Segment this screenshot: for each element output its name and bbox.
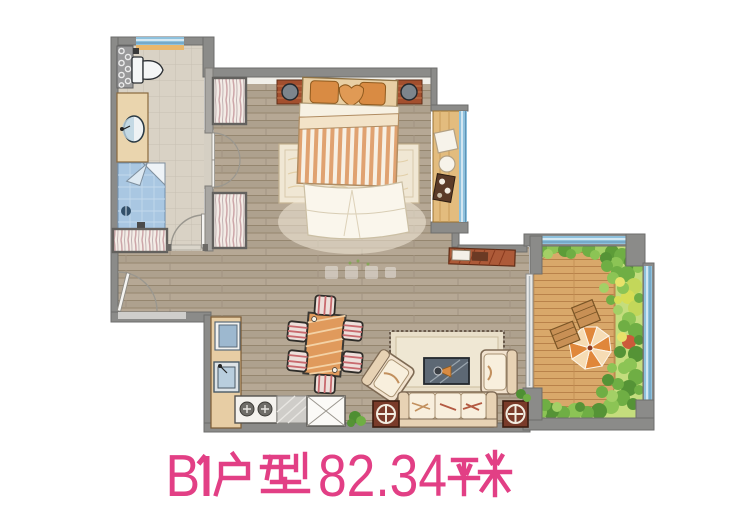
svg-text:82.34: 82.34 xyxy=(318,443,447,509)
svg-text:B: B xyxy=(166,443,201,509)
